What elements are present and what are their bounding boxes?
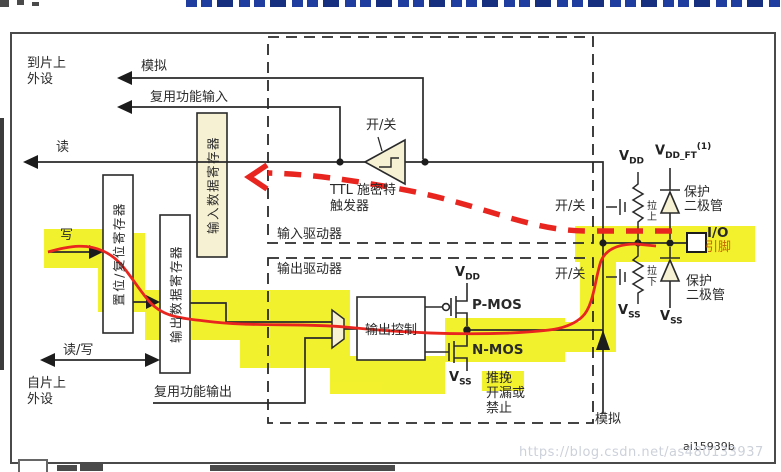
csdn-watermark: https://blog.csdn.net/as480133937 bbox=[519, 445, 764, 460]
gpio-structure-diagram-screenshot: 到片上外设 模拟 复用功能输入 读 写 读/写 自片上外设 复用功能输出 输入数… bbox=[0, 0, 781, 472]
output-data-register-label: 输出数据寄存器 bbox=[166, 245, 185, 343]
alternate-function-output-label: 复用功能输出 bbox=[154, 385, 232, 401]
pull-up-label: 拉上 bbox=[647, 201, 658, 223]
io-pin-square bbox=[687, 233, 706, 252]
read-write-label: 读/写 bbox=[63, 343, 93, 359]
on-off-input-label: 开/关 bbox=[555, 199, 585, 215]
vss-nmos-label: VSS bbox=[449, 370, 472, 388]
red-input-path-dashed bbox=[268, 173, 672, 231]
clipped-content-fragment bbox=[210, 465, 395, 471]
clipped-content-fragment bbox=[57, 465, 77, 471]
read-label: 读 bbox=[56, 140, 69, 156]
alternate-function-input-label: 复用功能输入 bbox=[150, 90, 228, 106]
input-driver-label: 输入驱动器 bbox=[277, 227, 342, 243]
input-driver-box bbox=[268, 37, 593, 243]
pushpull-opendrain-label: 推挽开漏或禁止 bbox=[486, 371, 525, 416]
input-data-register-label: 输入数据寄存器 bbox=[203, 136, 222, 234]
vdd-pmos-label: VDD bbox=[455, 265, 480, 283]
io-label: I/O bbox=[707, 225, 728, 241]
nmos-label: N-MOS bbox=[472, 342, 524, 358]
clipped-content-fragment bbox=[18, 459, 48, 472]
output-control-label: 输出控制 bbox=[357, 297, 425, 360]
output-driver-label: 输出驱动器 bbox=[277, 262, 342, 278]
protection-diode-top-label: 保护二极管 bbox=[684, 186, 723, 214]
vss-diode-label: VSS bbox=[660, 309, 683, 327]
pull-down-label: 拉下 bbox=[647, 266, 658, 288]
from-onchip-peripheral-label: 自片上外设 bbox=[27, 376, 66, 408]
pin-word-label: 引脚 bbox=[705, 240, 731, 256]
to-onchip-peripheral-label: 到片上外设 bbox=[27, 56, 66, 88]
analog-top-label: 模拟 bbox=[141, 59, 167, 75]
on-off-schmitt-label: 开/关 bbox=[366, 118, 396, 134]
protection-diode-bottom-label: 保护二极管 bbox=[686, 275, 725, 303]
red-input-path-arrowhead bbox=[249, 165, 267, 189]
analog-bottom-label: 模拟 bbox=[595, 412, 621, 428]
schmitt-trigger-symbol bbox=[365, 137, 405, 184]
pmos-label: P-MOS bbox=[472, 297, 522, 313]
bit-set-reset-register-label: 置位/复位寄存器 bbox=[109, 202, 128, 306]
vss-pulldown-label: VSS bbox=[618, 303, 641, 321]
write-label: 写 bbox=[60, 228, 73, 244]
clipped-content-fragment bbox=[80, 463, 103, 471]
ttl-schmitt-trigger-label: TTL 施密特触发器 bbox=[330, 183, 396, 215]
vdd-ft-label: VDD_FT(1) bbox=[655, 142, 711, 161]
vdd-pullup-label: VDD bbox=[619, 149, 644, 167]
on-off-output-label: 开/关 bbox=[555, 267, 585, 283]
